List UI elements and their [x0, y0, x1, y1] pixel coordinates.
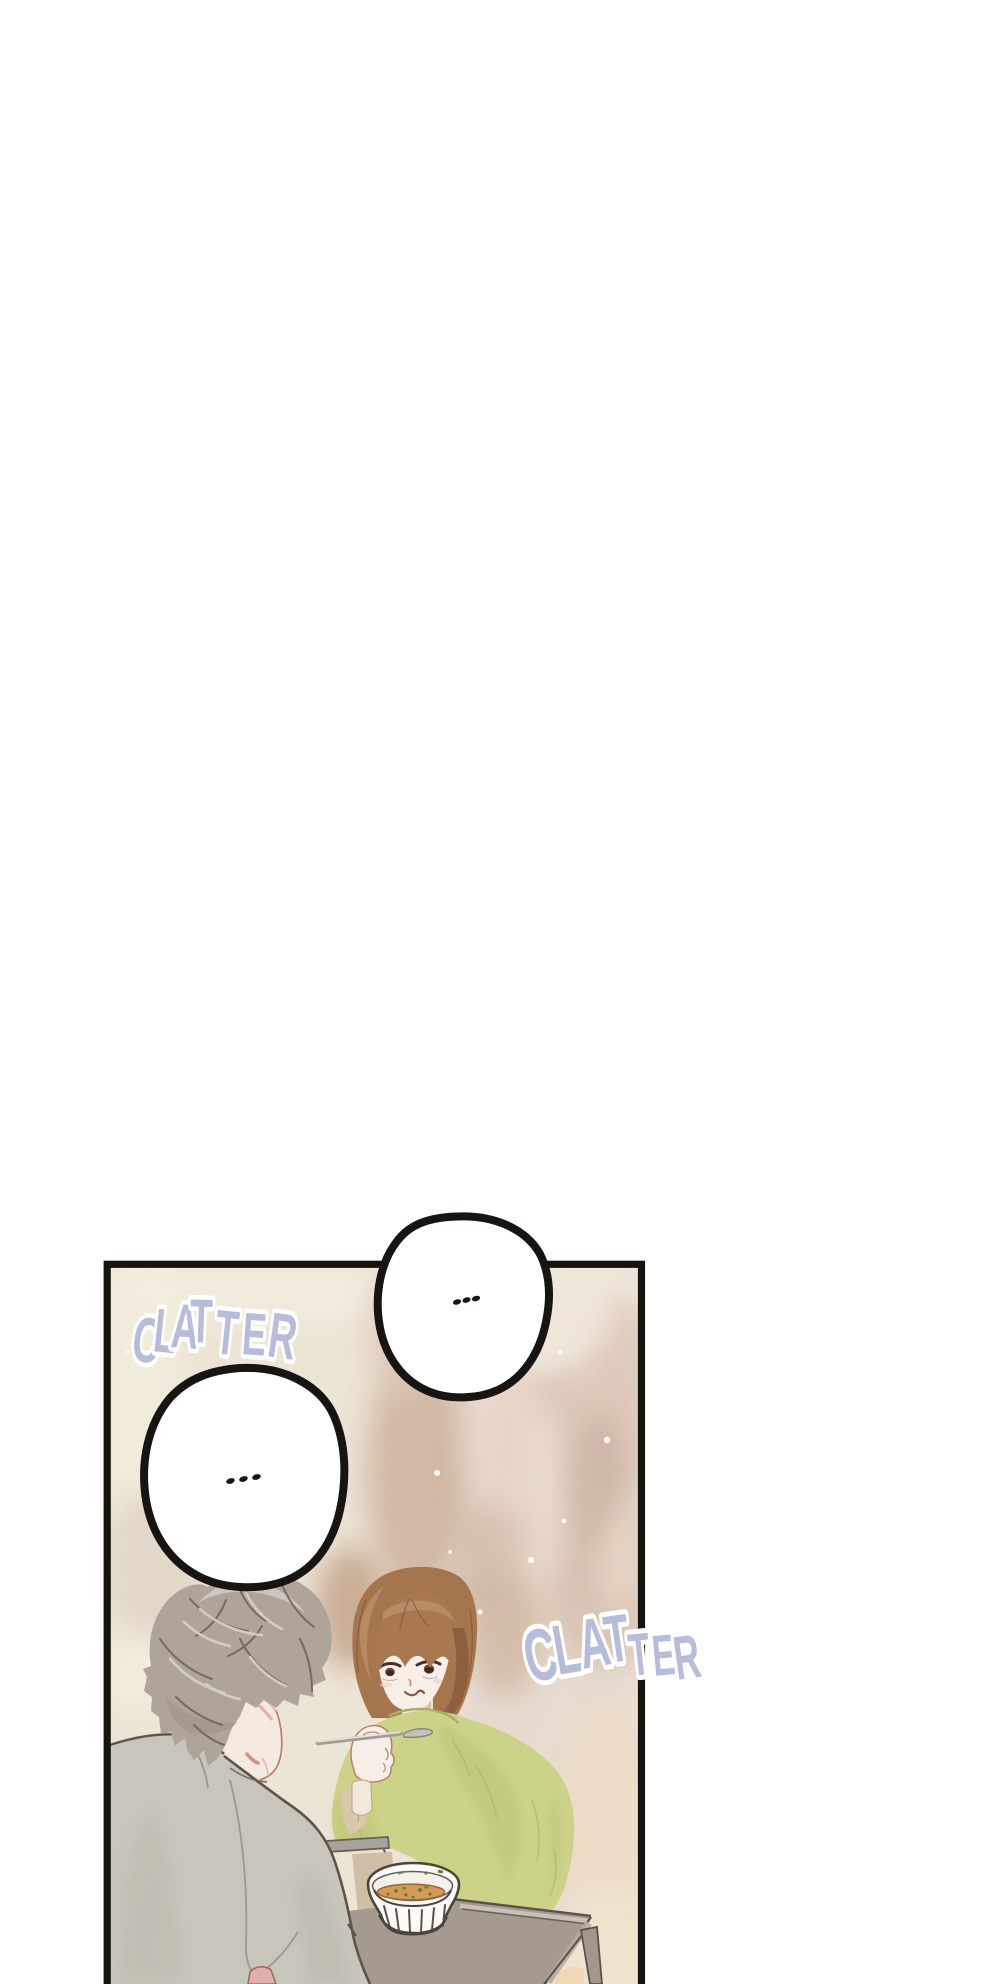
- svg-text:E: E: [240, 1301, 269, 1369]
- svg-text:T: T: [189, 1286, 214, 1356]
